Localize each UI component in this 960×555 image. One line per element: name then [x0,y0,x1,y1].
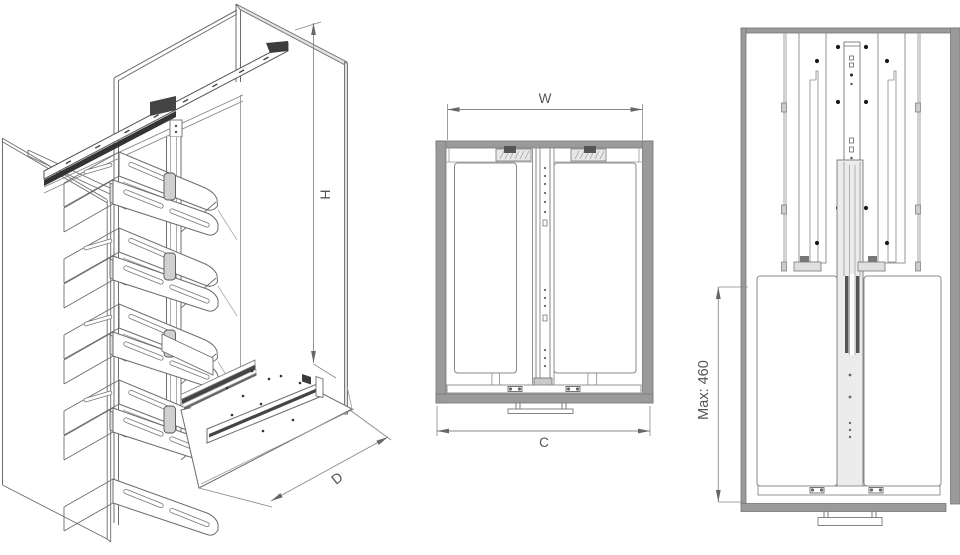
svg-text:H: H [318,189,334,199]
svg-text:D: D [328,469,346,488]
svg-text:C: C [539,435,549,450]
svg-text:W: W [539,91,552,106]
svg-text:Max: 460: Max: 460 [696,360,712,420]
